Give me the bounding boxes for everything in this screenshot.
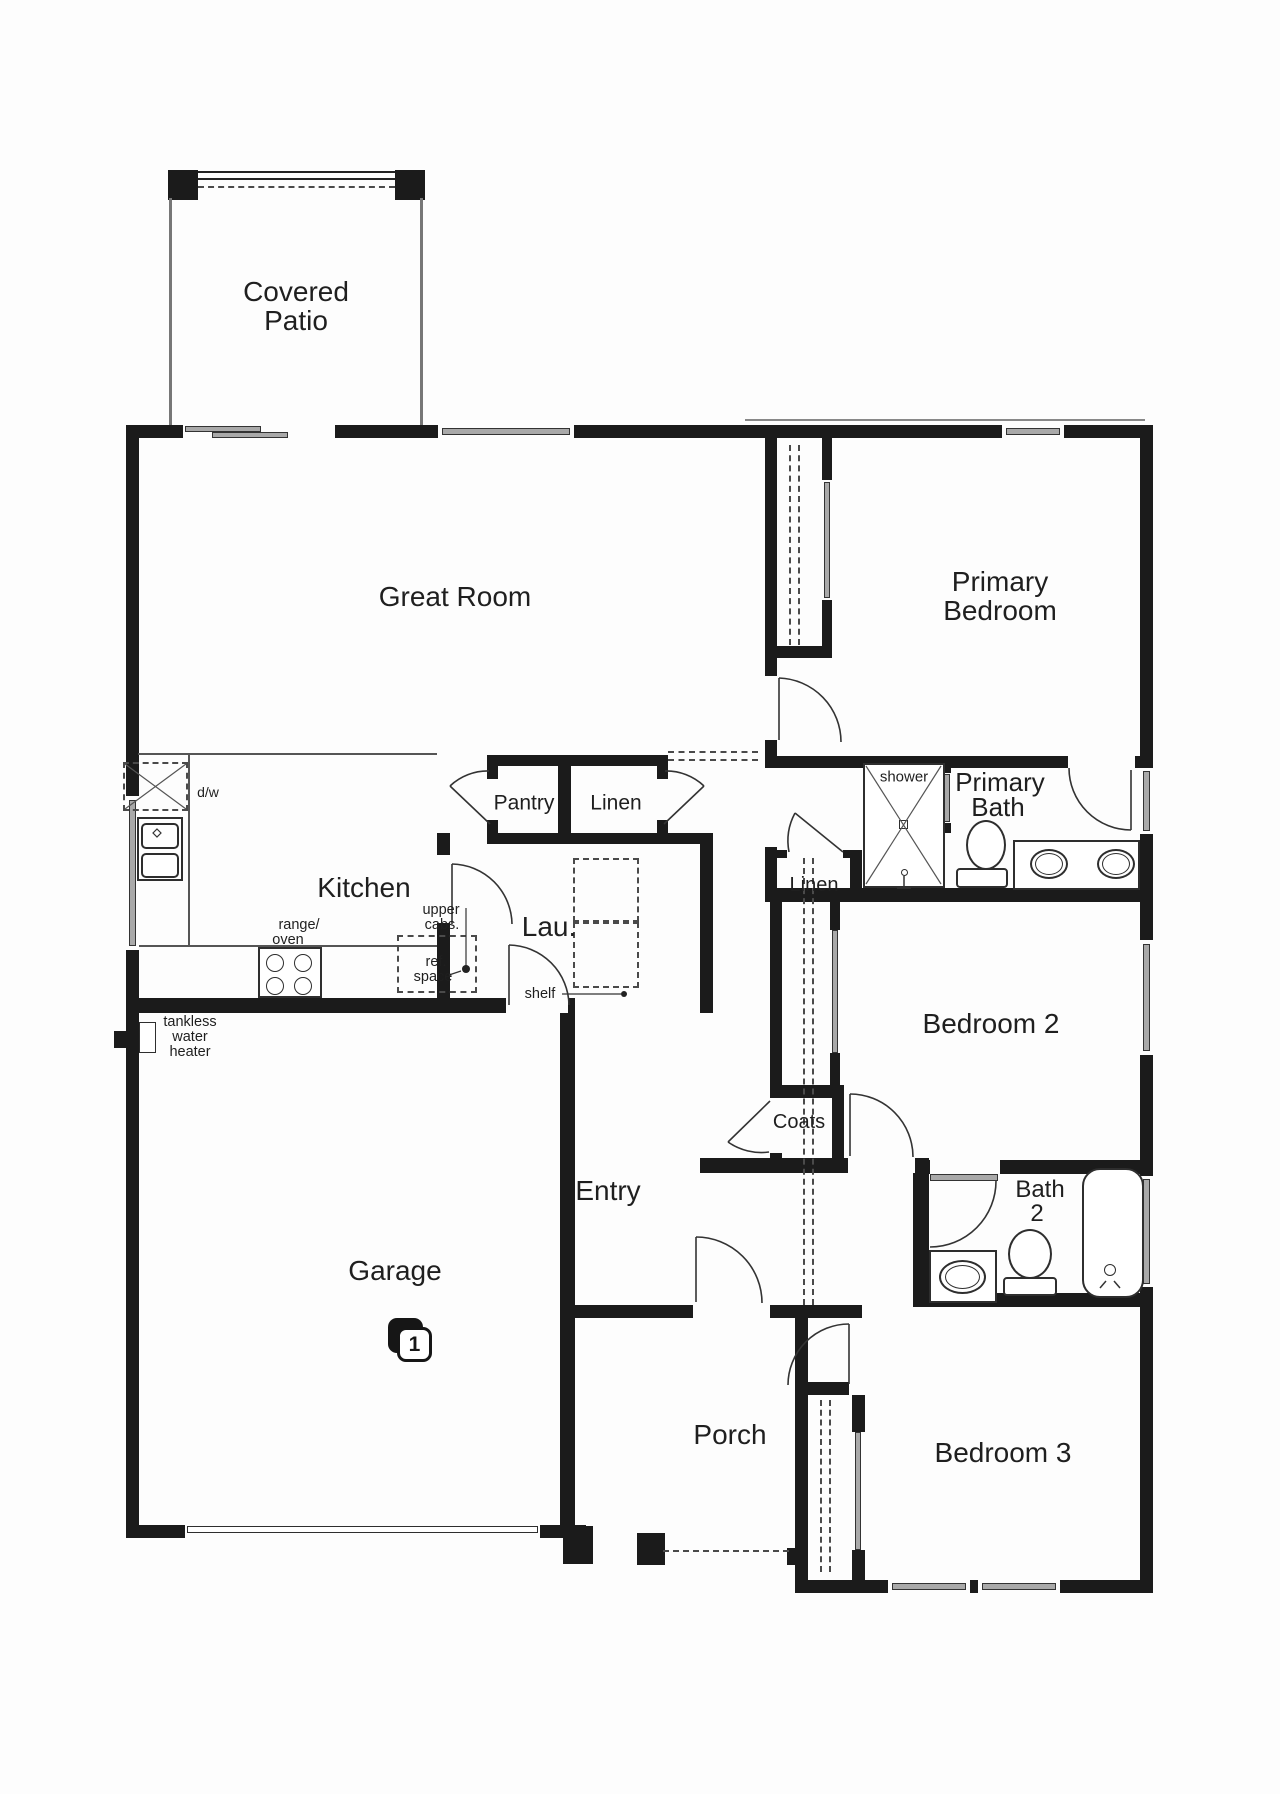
door-coats-arc — [728, 1142, 769, 1153]
label-bath-2-line1: Bath — [1015, 1178, 1064, 1202]
label-bedroom-3: Bedroom 3 — [935, 1439, 1072, 1467]
label-primary-bath-line2: Bath — [971, 794, 1025, 820]
door-pantry-arc — [450, 771, 489, 786]
label-bedroom-2: Bedroom 2 — [923, 1010, 1060, 1038]
door-bedroom2-arc — [850, 1094, 913, 1157]
door-laundry-kitchen-arc — [452, 864, 512, 924]
label-kitchen: Kitchen — [317, 874, 410, 902]
label-range-line1: range/ — [278, 918, 319, 933]
label-laundry: Lau. — [522, 913, 577, 941]
label-linen-hall: Linen — [590, 793, 641, 814]
label-shower: shower — [880, 770, 928, 785]
plan-linework — [0, 0, 1280, 1794]
door-primary-bedroom-arc — [779, 678, 841, 742]
label-upper-cabs-line1: upper — [422, 903, 459, 918]
door-linen-bath-leaf — [795, 813, 843, 852]
label-upper-cabs-line2: cabs. — [425, 918, 460, 933]
door-coats-leaf — [728, 1101, 770, 1142]
leader-dot — [462, 965, 470, 973]
door-bath2-arc — [930, 1181, 996, 1247]
label-tankless-line1: tankless — [163, 1015, 216, 1030]
door-primary-bath-arc — [1069, 768, 1131, 830]
garage-bay-count-badge: 1 — [397, 1327, 432, 1362]
floor-plan-canvas: 1CoveredPatioGreat RoomPrimaryBedroomKit… — [0, 0, 1280, 1794]
sink-faucet-diamond — [153, 829, 161, 837]
tub-faucet-2 — [1114, 1281, 1120, 1288]
label-covered-patio-line2: Patio — [264, 307, 328, 335]
label-pantry: Pantry — [494, 793, 555, 814]
label-range-line2: oven — [272, 933, 303, 948]
label-primary-bedroom-line1: Primary — [952, 568, 1048, 596]
label-entry: Entry — [575, 1177, 640, 1205]
label-ref-space-line1: ref. — [426, 955, 447, 970]
label-covered-patio-line1: Covered — [243, 278, 349, 306]
label-dishwasher: d/w — [197, 785, 219, 799]
label-tankless-line2: water — [172, 1030, 207, 1045]
label-coats: Coats — [773, 1112, 825, 1132]
label-linen-bath: Linen — [790, 875, 839, 895]
label-ref-space-line2: space — [414, 970, 453, 985]
label-great-room: Great Room — [379, 583, 532, 611]
label-bath-2-line2: 2 — [1030, 1202, 1043, 1226]
leader-dot — [621, 991, 627, 997]
door-bedroom3-arc — [788, 1324, 849, 1385]
door-linen-hall-arc — [665, 771, 704, 786]
label-shelf: shelf — [525, 987, 556, 1002]
door-front-arc — [696, 1237, 762, 1303]
label-porch: Porch — [693, 1421, 766, 1449]
door-linen-hall-leaf — [664, 786, 704, 824]
label-primary-bedroom-line2: Bedroom — [943, 597, 1057, 625]
label-garage: Garage — [348, 1257, 441, 1285]
label-tankless-line3: heater — [169, 1045, 210, 1060]
tub-faucet-1 — [1100, 1281, 1106, 1288]
door-pantry-leaf — [450, 786, 490, 824]
door-linen-bath-arc — [788, 813, 795, 852]
